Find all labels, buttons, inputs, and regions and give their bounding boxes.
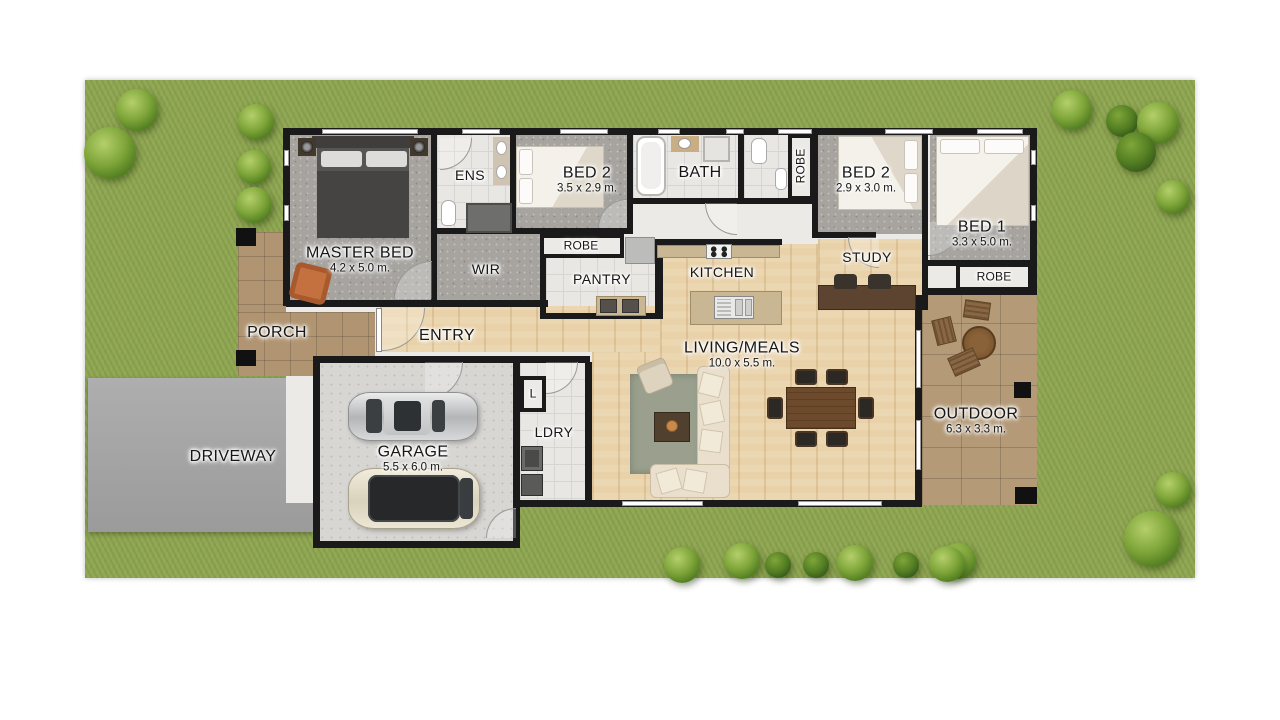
room-dims: 5.5 x 6.0 m. bbox=[378, 462, 449, 475]
room-name: BED 2 bbox=[836, 165, 896, 183]
room-name: KITCHEN bbox=[690, 265, 754, 281]
basin-icon bbox=[775, 168, 787, 190]
window bbox=[726, 129, 744, 134]
lamp-icon bbox=[413, 141, 425, 153]
dining-chair bbox=[795, 431, 817, 447]
dining-table bbox=[786, 387, 856, 429]
room-label-living: LIVING/MEALS 10.0 x 5.5 m. bbox=[684, 340, 800, 371]
dining-chair bbox=[826, 431, 848, 447]
lamp-icon bbox=[301, 141, 313, 153]
room-label-bed2a: BED 2 3.5 x 2.9 m. bbox=[557, 165, 617, 196]
master-blanket bbox=[317, 171, 409, 238]
pillow bbox=[940, 139, 980, 154]
room-dims: 6.3 x 3.3 m. bbox=[934, 424, 1019, 437]
outdoor-chair bbox=[963, 299, 991, 320]
pantry-sink bbox=[600, 299, 617, 313]
room-label-ens: ENS bbox=[455, 168, 485, 184]
window bbox=[658, 129, 680, 134]
car-windshield bbox=[432, 400, 445, 432]
tree-icon bbox=[893, 552, 919, 578]
pillow bbox=[984, 139, 1024, 154]
pillow bbox=[904, 173, 918, 203]
room-label-driveway: DRIVEWAY bbox=[190, 448, 277, 466]
room-label-kitchen: KITCHEN bbox=[690, 265, 754, 281]
tree-icon bbox=[84, 127, 136, 179]
room-name: PANTRY bbox=[573, 272, 631, 288]
sink-icon bbox=[496, 141, 507, 155]
room-label-outdoor: OUTDOOR 6.3 x 3.3 m. bbox=[934, 406, 1019, 437]
room-label-robe-bed1: ROBE bbox=[977, 270, 1012, 283]
room-label-master: MASTER BED 4.2 x 5.0 m. bbox=[306, 245, 414, 276]
window bbox=[284, 205, 289, 221]
room-name: ROBE bbox=[564, 239, 599, 252]
tree-icon bbox=[1155, 472, 1191, 508]
outdoor-post bbox=[1015, 487, 1037, 504]
room-label-porch: PORCH bbox=[247, 324, 307, 342]
room-dims: 2.9 x 3.0 m. bbox=[836, 183, 896, 196]
wall bbox=[286, 300, 548, 307]
porch-post bbox=[236, 350, 256, 366]
sink-drainer bbox=[717, 299, 731, 316]
room-label-entry: ENTRY bbox=[419, 327, 475, 345]
tree-icon bbox=[238, 104, 274, 140]
room-label-wir: WIR bbox=[472, 262, 500, 278]
room-name: OUTDOOR bbox=[934, 406, 1019, 424]
wall bbox=[738, 134, 744, 202]
dining-chair bbox=[826, 369, 848, 385]
window bbox=[462, 129, 500, 134]
room-label-robe-vert: ROBE bbox=[794, 149, 807, 184]
room-name: ROBE bbox=[794, 149, 807, 184]
room-name: BATH bbox=[678, 164, 721, 182]
sofa-cushion bbox=[699, 429, 724, 454]
sink-bowl bbox=[745, 299, 752, 316]
room-name: MASTER BED bbox=[306, 245, 414, 263]
wall bbox=[313, 541, 520, 548]
room-label-study: STUDY bbox=[842, 250, 891, 266]
wall bbox=[585, 362, 592, 502]
tree-icon bbox=[765, 552, 791, 578]
car-suv-roof bbox=[368, 475, 460, 522]
stove-icon bbox=[706, 244, 732, 259]
room-label-ldry: LDRY bbox=[535, 425, 574, 441]
room-dims: 3.5 x 2.9 m. bbox=[557, 183, 617, 196]
tree-icon bbox=[664, 547, 700, 583]
room-name: PORCH bbox=[247, 324, 307, 342]
room-name: WIR bbox=[472, 262, 500, 278]
tree-icon bbox=[116, 89, 158, 131]
sink-icon bbox=[678, 138, 691, 149]
room-name: GARAGE bbox=[378, 444, 449, 462]
laundry-tub bbox=[521, 474, 543, 496]
room-name: LDRY bbox=[535, 425, 574, 441]
sliding-door bbox=[916, 420, 921, 470]
floor-plan-scene: MASTER BED 4.2 x 5.0 m. ENS BED 2 3.5 x … bbox=[0, 0, 1280, 720]
pantry-sink bbox=[622, 299, 639, 313]
toilet-icon bbox=[751, 138, 767, 164]
room-name: ENTRY bbox=[419, 327, 475, 345]
table-decor bbox=[666, 420, 678, 432]
master-bed-headboard bbox=[312, 136, 414, 148]
sofa-cushion bbox=[699, 400, 725, 426]
window bbox=[885, 129, 933, 134]
room-name: BED 2 bbox=[557, 165, 617, 183]
tree-icon bbox=[1156, 180, 1190, 214]
room-label-bed1: BED 1 3.3 x 5.0 m. bbox=[952, 219, 1012, 250]
room-label-linen: L bbox=[530, 387, 537, 400]
car-suv-windshield bbox=[460, 478, 473, 519]
room-name: L bbox=[530, 387, 537, 400]
room-name: LIVING/MEALS bbox=[684, 340, 800, 358]
tree-icon bbox=[837, 545, 873, 581]
car-sunroof bbox=[394, 401, 421, 431]
window bbox=[977, 129, 1023, 134]
pillow bbox=[519, 149, 533, 175]
sink-bowl bbox=[735, 299, 743, 316]
room-name: ROBE bbox=[977, 270, 1012, 283]
tree-icon bbox=[803, 552, 829, 578]
room-name: BED 1 bbox=[952, 219, 1012, 237]
tree-icon bbox=[236, 187, 272, 223]
window bbox=[798, 501, 882, 506]
room-dims: 4.2 x 5.0 m. bbox=[306, 263, 414, 276]
room-name: STUDY bbox=[842, 250, 891, 266]
window bbox=[622, 501, 703, 506]
window bbox=[560, 129, 608, 134]
ens-shower bbox=[466, 203, 512, 233]
desk-chair bbox=[834, 274, 857, 289]
dining-chair bbox=[795, 369, 817, 385]
window bbox=[1031, 150, 1036, 165]
dining-chair bbox=[858, 397, 874, 419]
room-label-pantry: PANTRY bbox=[573, 272, 631, 288]
wall bbox=[915, 295, 922, 505]
room-dims: 10.0 x 5.5 m. bbox=[684, 358, 800, 371]
dining-chair bbox=[767, 397, 783, 419]
tree-icon bbox=[1052, 90, 1092, 130]
tree-icon bbox=[1124, 511, 1180, 567]
room-label-bath: BATH bbox=[678, 164, 721, 182]
room-dims: 3.3 x 5.0 m. bbox=[952, 237, 1012, 250]
room-label-robe-top: ROBE bbox=[564, 239, 599, 252]
pillow bbox=[904, 140, 918, 170]
sliding-door bbox=[916, 330, 921, 388]
fridge-icon bbox=[625, 237, 655, 264]
desk-chair bbox=[868, 274, 891, 289]
outdoor-post bbox=[1014, 382, 1031, 398]
room-label-bed2b: BED 2 2.9 x 3.0 m. bbox=[836, 165, 896, 196]
tree-icon bbox=[237, 150, 271, 184]
window bbox=[322, 129, 418, 134]
bath-shower bbox=[703, 136, 730, 162]
tree-icon bbox=[1116, 132, 1156, 172]
wall bbox=[627, 134, 633, 234]
porch-post bbox=[236, 228, 256, 246]
wall bbox=[313, 362, 320, 548]
sofa-cushion bbox=[682, 468, 707, 493]
tree-icon bbox=[724, 543, 760, 579]
car-rear-glass bbox=[366, 399, 382, 433]
pillow bbox=[519, 178, 533, 204]
study-desk bbox=[818, 285, 916, 310]
room-name: ENS bbox=[455, 168, 485, 184]
pillow bbox=[366, 151, 407, 167]
toilet-icon bbox=[441, 200, 456, 226]
bathtub-inner bbox=[641, 142, 661, 189]
window bbox=[1031, 205, 1036, 221]
tree-icon bbox=[929, 546, 965, 582]
window bbox=[284, 150, 289, 166]
washer-icon bbox=[521, 446, 543, 471]
sink-icon bbox=[496, 165, 507, 179]
room-label-garage: GARAGE 5.5 x 6.0 m. bbox=[378, 444, 449, 475]
room-name: DRIVEWAY bbox=[190, 448, 277, 466]
pillow bbox=[321, 151, 362, 167]
